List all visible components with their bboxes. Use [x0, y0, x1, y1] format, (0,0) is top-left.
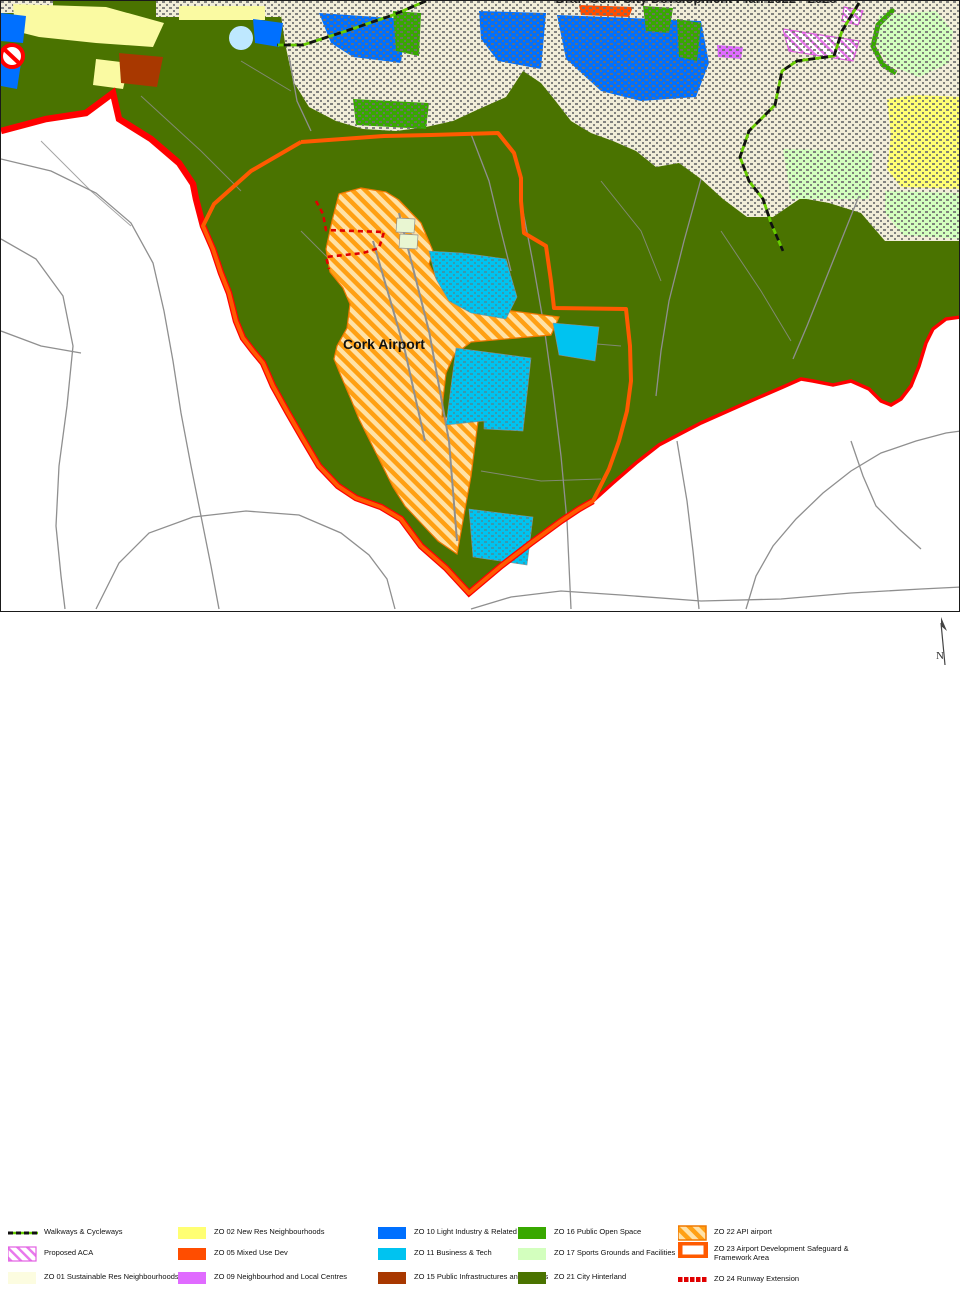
legend-item-zo05: ZO 05 Mixed Use Dev — [178, 1246, 288, 1267]
reservoir — [229, 26, 253, 50]
legend-item-zo23: ZO 23 Airport Development Safeguard &Fra… — [678, 1242, 849, 1263]
building-fabric — [446, 348, 531, 431]
north-label: N — [936, 650, 944, 662]
building-fabric — [469, 509, 533, 565]
legend-item-zo24: ZO 24 Runway Extension — [678, 1272, 799, 1293]
zone-business-tech — [553, 323, 599, 361]
zone-infrastructure — [119, 53, 163, 87]
zoning-map: Cork Airport — [1, 1, 959, 611]
zone-light-industry — [1, 13, 26, 43]
zo16-swatch — [518, 1225, 548, 1246]
legend-item-zo09: ZO 09 Neighbourhod and Local Centres — [178, 1270, 347, 1291]
zo10-swatch — [378, 1225, 408, 1246]
zo24-swatch — [678, 1272, 708, 1293]
zo09-swatch — [178, 1270, 208, 1291]
legend-item-zo16: ZO 16 Public Open Space — [518, 1225, 641, 1246]
zone-sust-res — [179, 6, 265, 20]
zone-sports-grounds — [396, 218, 415, 233]
zo02-swatch — [178, 1225, 208, 1246]
legend-item-zo11: ZO 11 Business & Tech — [378, 1246, 492, 1267]
walkway-swatch — [8, 1225, 38, 1246]
zo21-swatch — [518, 1270, 548, 1291]
aca-swatch — [8, 1246, 38, 1267]
zo05-swatch — [178, 1246, 208, 1267]
north-arrow: N — [930, 613, 956, 673]
zone-light-industry — [253, 19, 283, 47]
legend-item-zo10: ZO 10 Light Industry & Related Uses — [378, 1225, 536, 1246]
zo01-swatch — [8, 1270, 38, 1291]
zo17-swatch — [518, 1246, 548, 1267]
cork-airport-label: Cork Airport — [343, 336, 425, 352]
legend-item-zo01: ZO 01 Sustainable Res Neighbourhoods — [8, 1270, 179, 1291]
zone-sports-grounds — [399, 234, 418, 249]
map-legend: Walkways & Cycleways Proposed ACA ZO 01 … — [0, 612, 960, 679]
legend-item-proposed-aca: Proposed ACA — [8, 1246, 93, 1267]
legend-item-zo17: ZO 17 Sports Grounds and Facilities — [518, 1246, 675, 1267]
legend-item-walkways: Walkways & Cycleways — [8, 1225, 123, 1246]
zo15-swatch — [378, 1270, 408, 1291]
legend-item-zo02: ZO 02 New Res Neighbourhoods — [178, 1225, 324, 1246]
map-title: Draft Cork City Development Plan 2022 - … — [555, 0, 836, 6]
zo11-swatch — [378, 1246, 408, 1267]
map-canvas: Draft Cork City Development Plan 2022 - … — [0, 0, 960, 612]
zo23-swatch — [678, 1242, 708, 1263]
legend-item-zo21: ZO 21 City Hinterland — [518, 1270, 626, 1291]
